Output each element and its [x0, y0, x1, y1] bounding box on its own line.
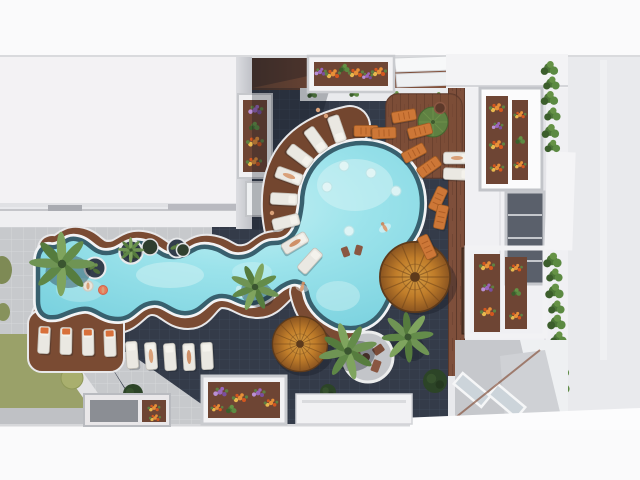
- thatch-umbrella-icon: [272, 316, 327, 371]
- bottom-center-planter: [202, 376, 286, 424]
- scene-canvas: [0, 0, 640, 480]
- top-balcony-planter: [308, 56, 394, 92]
- bottom-building-roof: [0, 426, 640, 480]
- lounger: [37, 326, 52, 355]
- roof-connector: [48, 205, 82, 211]
- sunbather: [451, 156, 463, 160]
- left-roof-ledge: [0, 211, 238, 227]
- water-highlight: [136, 262, 204, 288]
- lounger: [163, 343, 178, 372]
- deck-planter: [177, 244, 190, 257]
- glass-roof-panel: [394, 56, 454, 72]
- lounger-row-dark-tile: [125, 341, 215, 372]
- lounger: [201, 342, 216, 371]
- lounger: [104, 329, 118, 358]
- water-highlight: [316, 281, 360, 311]
- left-building-roof: [0, 57, 238, 207]
- pool-float: [99, 286, 108, 295]
- roof-connector-2: [168, 204, 238, 210]
- lounger: [269, 192, 298, 207]
- lounger: [125, 341, 140, 370]
- balcony-slab: [544, 152, 575, 251]
- deck-table: [435, 103, 446, 114]
- right-ground-strip: [600, 60, 607, 360]
- deck-planter: [142, 239, 158, 255]
- thatch-umbrella-icon: [380, 242, 450, 312]
- resort-aerial-render: [0, 0, 640, 480]
- lounger: [82, 328, 96, 357]
- lounger: [60, 327, 74, 356]
- bottom-roof-structure: [296, 394, 412, 424]
- bottom-left-planter: [84, 394, 170, 426]
- top-building-roof: [0, 0, 640, 57]
- dark-shrub-circle: [423, 369, 447, 393]
- balcony-planter-upper: [480, 88, 542, 190]
- lounger: [370, 127, 396, 140]
